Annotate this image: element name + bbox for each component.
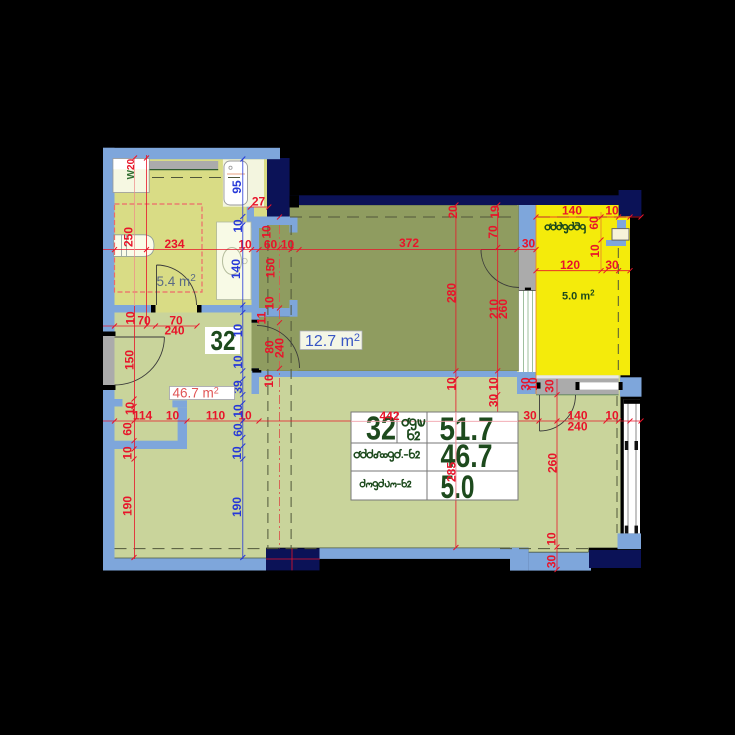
svg-text:10: 10 xyxy=(123,402,137,416)
svg-text:30: 30 xyxy=(543,379,557,393)
svg-text:10: 10 xyxy=(263,296,277,310)
svg-text:150: 150 xyxy=(123,350,137,370)
svg-text:10: 10 xyxy=(230,446,244,460)
svg-text:372: 372 xyxy=(399,236,419,250)
svg-text:10: 10 xyxy=(231,355,245,369)
svg-text:10: 10 xyxy=(231,324,245,338)
svg-text:95: 95 xyxy=(230,180,244,194)
svg-text:10: 10 xyxy=(526,377,540,391)
svg-text:10: 10 xyxy=(588,244,602,258)
svg-text:110: 110 xyxy=(206,409,226,423)
svg-text:240: 240 xyxy=(164,324,184,338)
svg-text:10: 10 xyxy=(121,446,135,460)
svg-text:70: 70 xyxy=(137,314,151,328)
svg-text:10: 10 xyxy=(231,404,245,418)
svg-text:234: 234 xyxy=(164,237,184,251)
svg-text:285: 285 xyxy=(445,462,459,482)
svg-text:10: 10 xyxy=(605,204,619,218)
svg-text:10: 10 xyxy=(487,377,501,391)
svg-text:10: 10 xyxy=(166,409,180,423)
svg-text:20: 20 xyxy=(446,205,460,219)
svg-text:30: 30 xyxy=(487,394,501,408)
svg-text:10: 10 xyxy=(545,532,559,546)
svg-text:30: 30 xyxy=(605,258,619,272)
svg-text:10: 10 xyxy=(238,238,252,252)
svg-text:10: 10 xyxy=(605,409,619,423)
svg-text:10: 10 xyxy=(260,225,274,239)
svg-text:10: 10 xyxy=(262,374,276,388)
svg-text:190: 190 xyxy=(121,496,135,516)
svg-text:260: 260 xyxy=(546,453,560,473)
svg-text:11: 11 xyxy=(255,311,269,324)
svg-text:19: 19 xyxy=(488,205,502,219)
svg-text:30: 30 xyxy=(522,237,536,251)
svg-text:10: 10 xyxy=(124,311,138,325)
svg-text:280: 280 xyxy=(445,283,459,303)
svg-text:70: 70 xyxy=(486,225,500,239)
svg-text:190: 190 xyxy=(230,497,244,517)
svg-text:10: 10 xyxy=(231,219,245,233)
svg-text:240: 240 xyxy=(567,420,587,434)
svg-text:250: 250 xyxy=(122,227,136,247)
svg-text:60: 60 xyxy=(231,423,245,437)
svg-text:30: 30 xyxy=(523,409,537,423)
svg-text:140: 140 xyxy=(229,259,243,279)
svg-text:260: 260 xyxy=(496,299,510,319)
svg-text:12.7 m2: 12.7 m2 xyxy=(305,332,360,350)
svg-text:150: 150 xyxy=(264,258,278,278)
svg-text:10: 10 xyxy=(445,377,459,391)
svg-text:10: 10 xyxy=(281,238,295,252)
svg-text:60: 60 xyxy=(121,422,135,436)
svg-text:120: 120 xyxy=(560,258,580,272)
svg-text:30: 30 xyxy=(545,555,559,569)
svg-text:140: 140 xyxy=(562,204,582,218)
svg-text:W20: W20 xyxy=(126,158,137,179)
svg-text:60: 60 xyxy=(587,216,601,230)
svg-text:27: 27 xyxy=(252,195,266,209)
svg-text:46.7 m2: 46.7 m2 xyxy=(173,386,219,401)
svg-text:240: 240 xyxy=(273,338,287,358)
svg-text:442: 442 xyxy=(379,409,399,423)
